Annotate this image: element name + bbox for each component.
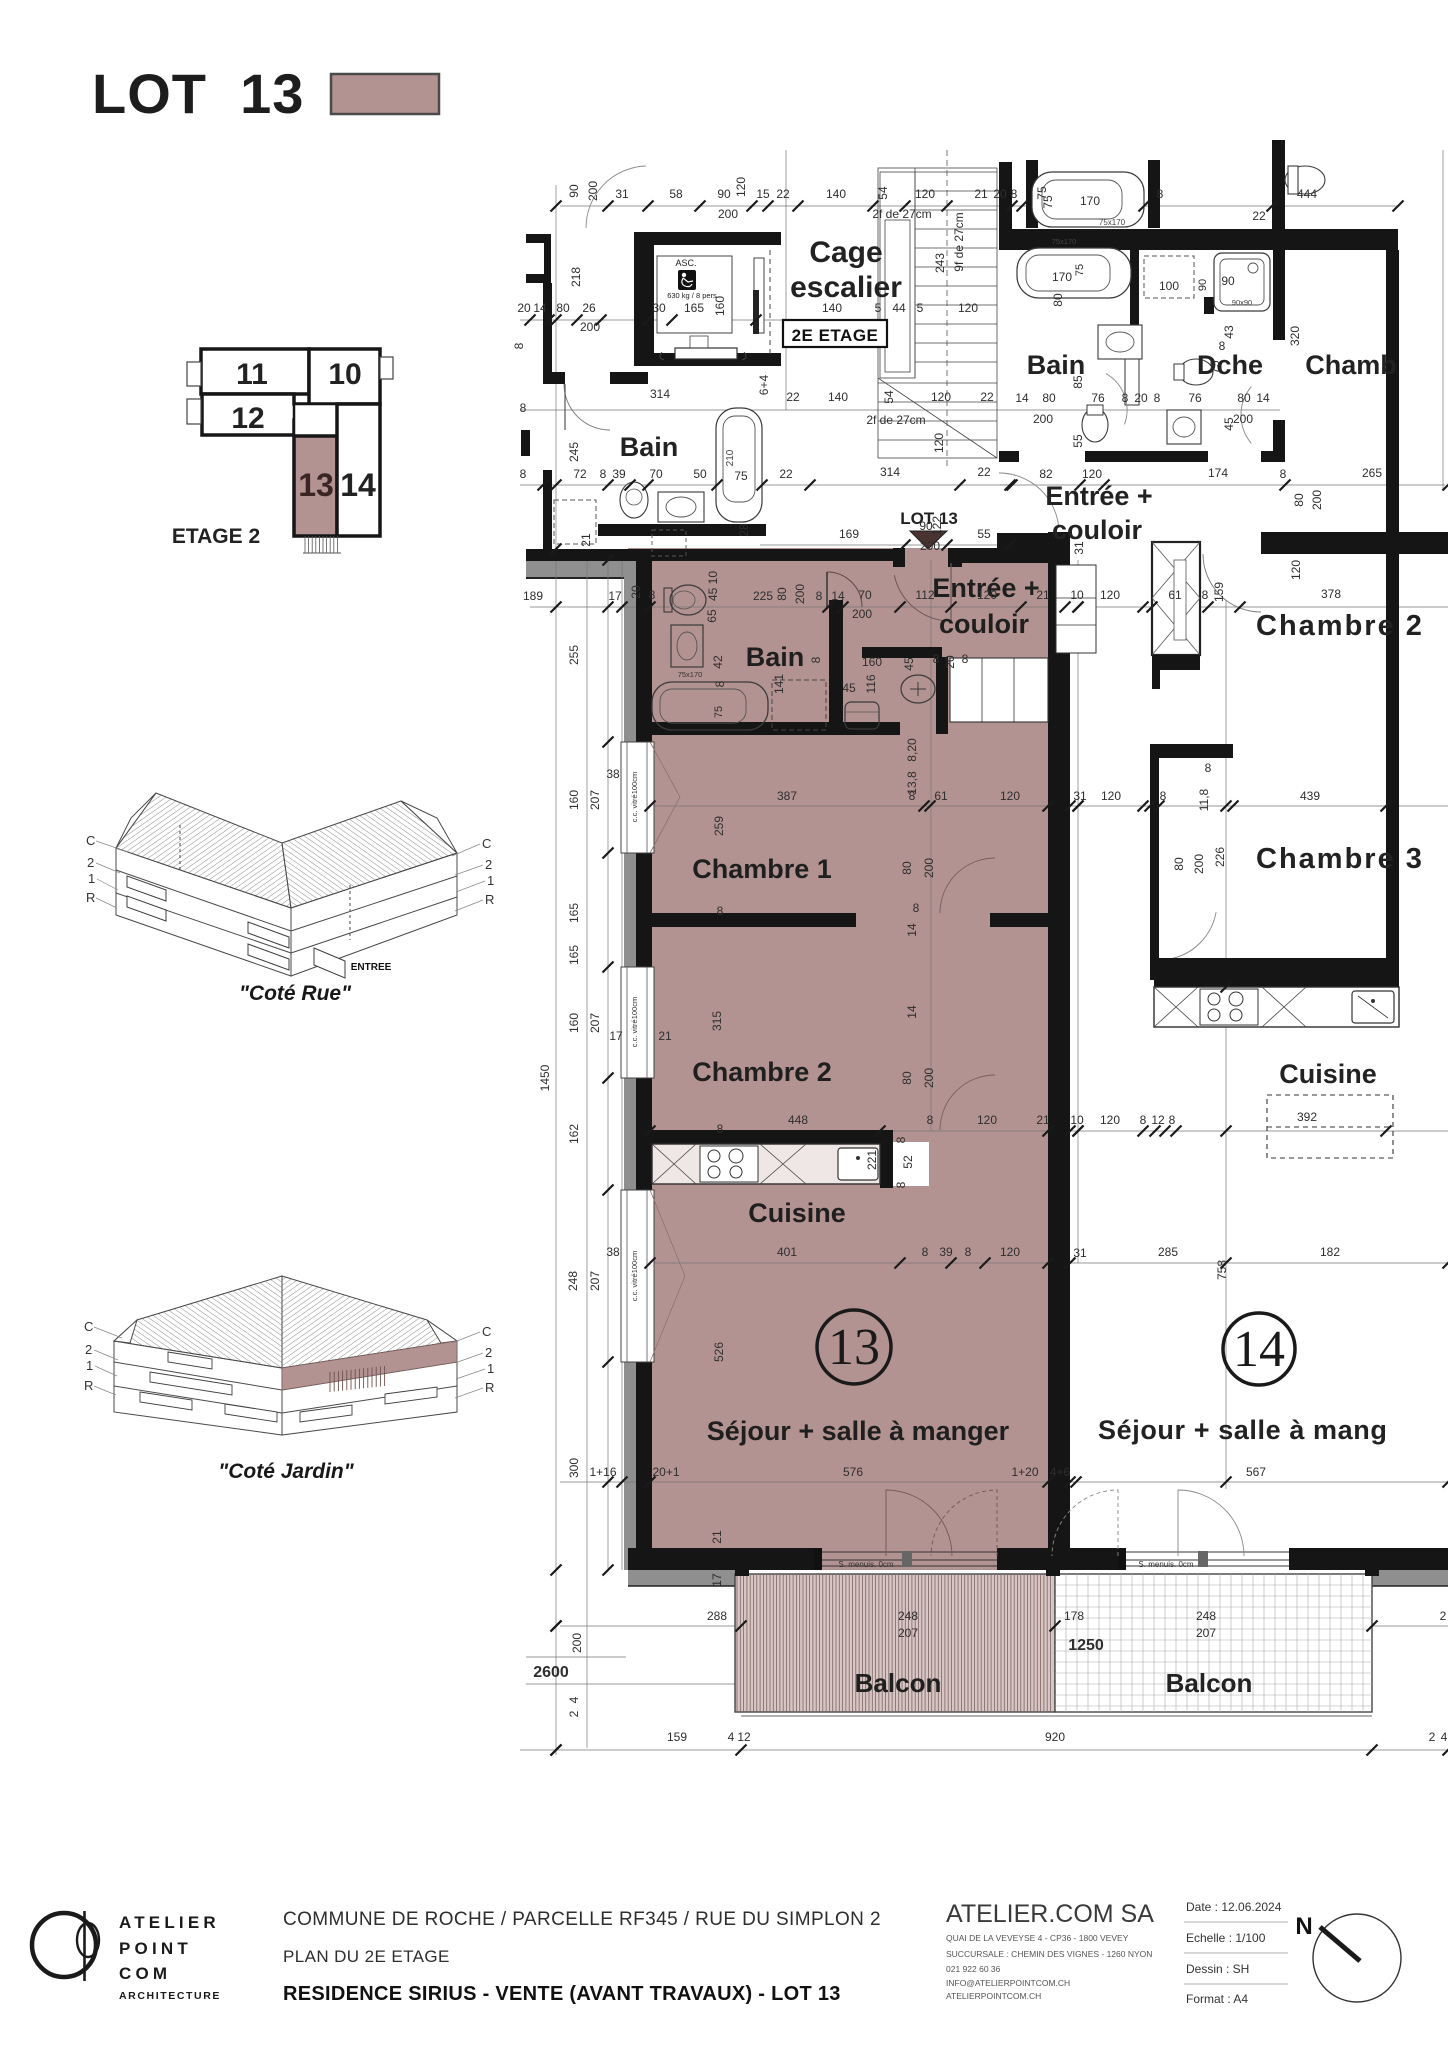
svg-text:207: 207 — [1196, 1626, 1216, 1640]
svg-text:70: 70 — [858, 588, 872, 602]
svg-text:300: 300 — [567, 1458, 581, 1478]
svg-text:31: 31 — [1072, 541, 1086, 555]
svg-text:ATELIER.COM SA: ATELIER.COM SA — [946, 1900, 1154, 1928]
svg-text:10: 10 — [328, 358, 361, 391]
svg-text:Cuisine: Cuisine — [748, 1198, 846, 1228]
svg-text:1+20: 1+20 — [1011, 1465, 1038, 1479]
svg-text:8: 8 — [922, 1245, 929, 1259]
svg-text:8: 8 — [520, 467, 527, 481]
svg-text:31: 31 — [615, 187, 629, 201]
svg-text:4: 4 — [567, 1696, 581, 1703]
svg-text:200: 200 — [1033, 412, 1053, 426]
svg-text:38: 38 — [606, 1245, 620, 1259]
svg-text:320: 320 — [1288, 326, 1302, 346]
svg-text:8: 8 — [962, 652, 969, 666]
svg-text:POINT: POINT — [119, 1939, 192, 1958]
svg-text:30: 30 — [652, 301, 666, 315]
svg-text:8: 8 — [965, 1245, 972, 1259]
svg-text:20: 20 — [629, 585, 643, 599]
svg-text:12: 12 — [1151, 1113, 1165, 1127]
svg-text:8: 8 — [1011, 187, 1018, 201]
svg-text:526: 526 — [712, 1342, 726, 1362]
svg-text:11,8: 11,8 — [1197, 788, 1211, 811]
svg-text:Cuisine: Cuisine — [1279, 1059, 1377, 1089]
svg-text:2f de 27cm: 2f de 27cm — [866, 413, 925, 427]
svg-text:14: 14 — [340, 467, 376, 503]
svg-text:80: 80 — [900, 1071, 914, 1085]
svg-text:COM: COM — [119, 1964, 171, 1983]
svg-text:120: 120 — [1101, 789, 1121, 803]
svg-text:8: 8 — [933, 652, 940, 666]
svg-text:55: 55 — [1071, 434, 1085, 448]
svg-text:Bain: Bain — [746, 642, 805, 672]
svg-text:14: 14 — [533, 301, 547, 315]
svg-text:Dche: Dche — [1197, 350, 1263, 380]
svg-text:221: 221 — [865, 1150, 879, 1170]
svg-text:ASC.: ASC. — [675, 258, 696, 268]
svg-text:75: 75 — [1074, 264, 1086, 276]
svg-text:8: 8 — [1122, 391, 1129, 405]
svg-text:82: 82 — [1039, 467, 1053, 481]
svg-text:c.c. vitré100cm: c.c. vitré100cm — [630, 772, 639, 822]
svg-text:72: 72 — [573, 467, 587, 481]
svg-text:120: 120 — [977, 588, 997, 602]
svg-text:8: 8 — [1202, 588, 1209, 602]
svg-text:8: 8 — [649, 588, 656, 602]
svg-text:160: 160 — [862, 655, 882, 669]
svg-text:ARCHITECTURE: ARCHITECTURE — [119, 1990, 221, 2002]
svg-text:1: 1 — [88, 871, 95, 886]
svg-text:8: 8 — [1154, 391, 1161, 405]
svg-text:120: 120 — [734, 177, 748, 197]
svg-text:RESIDENCE SIRIUS - VENTE (AVAN: RESIDENCE SIRIUS - VENTE (AVANT TRAVAUX)… — [283, 1983, 841, 2005]
svg-text:120: 120 — [1000, 1245, 1020, 1259]
svg-text:54: 54 — [876, 186, 890, 200]
svg-text:S. menuis. 0cm: S. menuis. 0cm — [1138, 1560, 1193, 1569]
svg-text:ENTREE: ENTREE — [351, 962, 392, 973]
svg-text:61: 61 — [934, 789, 948, 803]
svg-text:576: 576 — [843, 1465, 863, 1479]
svg-text:315: 315 — [710, 1011, 724, 1031]
svg-text:1250: 1250 — [1068, 1637, 1104, 1654]
svg-text:4: 4 — [1441, 1730, 1448, 1744]
svg-text:120: 120 — [1289, 560, 1303, 580]
svg-text:85: 85 — [1071, 375, 1085, 389]
svg-text:160: 160 — [567, 790, 581, 810]
svg-text:Format : A4: Format : A4 — [1186, 1992, 1248, 2006]
svg-text:90: 90 — [1221, 274, 1235, 288]
svg-text:8,20: 8,20 — [905, 738, 919, 762]
svg-text:12: 12 — [231, 402, 264, 435]
svg-text:38: 38 — [606, 767, 620, 781]
svg-text:14: 14 — [1015, 391, 1029, 405]
svg-text:76: 76 — [1091, 391, 1105, 405]
svg-text:2: 2 — [567, 1710, 581, 1717]
svg-text:200: 200 — [1192, 854, 1206, 874]
svg-text:140: 140 — [826, 187, 846, 201]
svg-text:75: 75 — [734, 469, 748, 483]
svg-text:61: 61 — [1168, 588, 1182, 602]
svg-text:8: 8 — [717, 1122, 724, 1136]
svg-text:20: 20 — [993, 187, 1007, 201]
svg-text:80: 80 — [1042, 391, 1056, 405]
svg-text:2: 2 — [485, 857, 492, 872]
svg-text:8: 8 — [512, 342, 526, 349]
svg-text:8: 8 — [927, 1113, 934, 1127]
svg-text:112: 112 — [915, 588, 934, 602]
svg-text:43: 43 — [1222, 325, 1236, 339]
svg-text:178: 178 — [1064, 1609, 1084, 1623]
svg-text:314: 314 — [650, 387, 670, 401]
svg-text:22: 22 — [779, 467, 793, 481]
svg-text:200: 200 — [1233, 412, 1253, 426]
svg-text:160: 160 — [713, 296, 727, 316]
svg-text:Balcon: Balcon — [1166, 1668, 1253, 1698]
svg-text:225: 225 — [753, 589, 773, 603]
svg-text:12: 12 — [737, 1730, 751, 1744]
svg-text:159: 159 — [1212, 582, 1226, 602]
svg-text:Chambre 1: Chambre 1 — [692, 854, 832, 884]
svg-text:200: 200 — [793, 584, 807, 604]
svg-text:160: 160 — [567, 1013, 581, 1033]
svg-text:90: 90 — [567, 184, 581, 198]
svg-text:22: 22 — [977, 465, 991, 479]
svg-text:couloir: couloir — [1052, 515, 1142, 545]
svg-text:122: 122 — [930, 516, 944, 536]
svg-text:50: 50 — [693, 467, 707, 481]
svg-text:17: 17 — [608, 589, 622, 603]
svg-text:70: 70 — [649, 467, 663, 481]
svg-text:13,8: 13,8 — [905, 771, 919, 795]
svg-text:200: 200 — [922, 858, 936, 878]
svg-text:90: 90 — [717, 187, 731, 201]
svg-text:021 922 60 36: 021 922 60 36 — [946, 1964, 1001, 1974]
svg-text:Séjour + salle à manger: Séjour + salle à manger — [707, 1416, 1010, 1446]
svg-text:248: 248 — [898, 1609, 918, 1623]
svg-text:448: 448 — [788, 1113, 808, 1127]
svg-text:120: 120 — [915, 187, 935, 201]
svg-text:58: 58 — [669, 187, 683, 201]
svg-text:21: 21 — [974, 187, 988, 201]
svg-text:401: 401 — [777, 1245, 797, 1259]
svg-text:Date : 12.06.2024: Date : 12.06.2024 — [1186, 1900, 1282, 1914]
svg-text:ETAGE 2: ETAGE 2 — [172, 525, 260, 548]
svg-text:4: 4 — [728, 1730, 735, 1744]
svg-text:8: 8 — [1205, 761, 1212, 775]
svg-text:14: 14 — [1233, 1321, 1285, 1378]
svg-text:80: 80 — [1051, 293, 1065, 307]
svg-text:76: 76 — [1188, 391, 1202, 405]
svg-text:escalier: escalier — [790, 271, 902, 304]
svg-text:20+1: 20+1 — [652, 1465, 679, 1479]
svg-text:120: 120 — [977, 1113, 997, 1127]
svg-text:5: 5 — [875, 301, 882, 315]
svg-text:165: 165 — [567, 903, 581, 923]
svg-text:920: 920 — [1045, 1730, 1065, 1744]
svg-text:Chamb: Chamb — [1305, 350, 1397, 380]
svg-text:8: 8 — [894, 1181, 908, 1188]
svg-text:159: 159 — [667, 1730, 687, 1744]
svg-text:439: 439 — [1300, 789, 1320, 803]
svg-text:22: 22 — [1252, 209, 1266, 223]
svg-text:75: 75 — [1208, 360, 1222, 374]
svg-text:17: 17 — [710, 1573, 724, 1587]
svg-text:ATELIER: ATELIER — [119, 1913, 220, 1932]
svg-text:9f de 27cm: 9f de 27cm — [952, 212, 966, 271]
svg-text:162: 162 — [567, 1124, 581, 1144]
svg-text:80: 80 — [1172, 857, 1186, 871]
svg-text:207: 207 — [588, 1271, 602, 1291]
svg-text:R: R — [485, 892, 494, 907]
svg-text:165: 165 — [684, 301, 704, 315]
svg-text:45: 45 — [842, 681, 856, 695]
svg-text:Dessin : SH: Dessin : SH — [1186, 1962, 1249, 1976]
svg-text:210: 210 — [725, 449, 736, 466]
svg-text:141: 141 — [772, 674, 786, 694]
svg-text:8: 8 — [1280, 467, 1287, 481]
svg-text:N: N — [1295, 1913, 1312, 1940]
svg-text:8: 8 — [809, 656, 823, 663]
svg-text:ATELIERPOINTCOM.CH: ATELIERPOINTCOM.CH — [946, 1991, 1041, 2001]
svg-text:174: 174 — [1208, 466, 1228, 480]
svg-text:5: 5 — [917, 301, 924, 315]
svg-text:8: 8 — [520, 401, 527, 415]
svg-text:8: 8 — [913, 901, 920, 915]
svg-text:54: 54 — [882, 390, 896, 404]
svg-text:378: 378 — [1321, 587, 1341, 601]
svg-text:R: R — [84, 1378, 93, 1393]
svg-text:55: 55 — [977, 527, 991, 541]
svg-text:80: 80 — [556, 301, 570, 315]
svg-text:R: R — [86, 890, 95, 905]
svg-text:116: 116 — [864, 674, 878, 693]
svg-text:26: 26 — [582, 301, 596, 315]
svg-text:QUAI DE LA VEVEYSE 4 - CP36 -: QUAI DE LA VEVEYSE 4 - CP36 - 1800 VEVEY — [946, 1933, 1129, 1943]
svg-text:14: 14 — [905, 923, 919, 937]
svg-text:120: 120 — [1100, 588, 1120, 602]
svg-text:22: 22 — [776, 187, 790, 201]
svg-text:10: 10 — [1070, 588, 1084, 602]
svg-text:75x170: 75x170 — [678, 670, 703, 679]
svg-text:8: 8 — [717, 904, 724, 918]
svg-text:COMMUNE DE ROCHE / PARCELLE RF: COMMUNE DE ROCHE / PARCELLE RF345 / RUE … — [283, 1909, 881, 1930]
svg-text:387: 387 — [777, 789, 797, 803]
svg-text:17: 17 — [609, 1029, 623, 1043]
svg-text:13: 13 — [828, 1319, 880, 1376]
svg-text:20: 20 — [943, 655, 957, 669]
svg-text:75: 75 — [713, 706, 725, 718]
svg-text:39: 39 — [612, 467, 626, 481]
svg-text:S. menuis. 0cm: S. menuis. 0cm — [838, 1560, 893, 1569]
svg-text:Entrée +: Entrée + — [1045, 481, 1152, 511]
svg-text:C: C — [482, 1324, 491, 1339]
svg-text:8: 8 — [1219, 339, 1226, 353]
svg-text:11: 11 — [236, 358, 268, 391]
svg-text:226: 226 — [1213, 847, 1227, 867]
svg-text:120: 120 — [931, 390, 951, 404]
svg-text:2: 2 — [1429, 1730, 1436, 1744]
svg-text:8: 8 — [713, 680, 727, 687]
svg-text:"Coté Jardin": "Coté Jardin" — [218, 1460, 354, 1483]
svg-text:248: 248 — [1196, 1609, 1216, 1623]
svg-text:8: 8 — [816, 589, 823, 603]
svg-text:SUCCURSALE : CHEMIN DES VIGNES: SUCCURSALE : CHEMIN DES VIGNES - 1260 NY… — [946, 1949, 1152, 1959]
svg-text:21: 21 — [710, 1530, 724, 1544]
svg-text:1: 1 — [86, 1358, 93, 1373]
svg-text:Balcon: Balcon — [855, 1668, 942, 1698]
svg-text:13: 13 — [298, 467, 334, 503]
svg-text:Chambre 2: Chambre 2 — [692, 1057, 832, 1087]
svg-text:2600: 2600 — [533, 1664, 569, 1681]
svg-text:45 10: 45 10 — [706, 571, 720, 601]
svg-text:285: 285 — [1158, 1245, 1178, 1259]
svg-text:c.c. vitré100cm: c.c. vitré100cm — [630, 1251, 639, 1301]
svg-text:8: 8 — [894, 1136, 908, 1143]
svg-text:44: 44 — [892, 301, 906, 315]
svg-text:Chambre 2: Chambre 2 — [1256, 610, 1424, 642]
svg-text:140: 140 — [828, 390, 848, 404]
svg-text:170: 170 — [1080, 194, 1100, 208]
svg-text:207: 207 — [588, 1013, 602, 1033]
svg-text:140: 140 — [822, 301, 842, 315]
svg-text:20: 20 — [517, 301, 531, 315]
svg-text:45: 45 — [1222, 417, 1236, 431]
svg-text:14: 14 — [831, 589, 845, 603]
svg-text:259: 259 — [712, 816, 726, 836]
svg-text:C: C — [482, 836, 491, 851]
svg-text:80: 80 — [1237, 391, 1251, 405]
svg-text:6+4: 6+4 — [757, 374, 771, 395]
svg-text:170: 170 — [1052, 270, 1072, 284]
svg-text:444: 444 — [1297, 187, 1317, 201]
svg-text:243: 243 — [933, 253, 947, 273]
svg-text:15: 15 — [756, 187, 770, 201]
svg-text:75: 75 — [1035, 186, 1049, 200]
svg-text:120: 120 — [1000, 789, 1020, 803]
svg-text:255: 255 — [567, 645, 581, 665]
svg-text:10: 10 — [1070, 1113, 1084, 1127]
svg-text:INFO@ATELIERPOINTCOM.CH: INFO@ATELIERPOINTCOM.CH — [946, 1978, 1070, 1988]
svg-text:120: 120 — [958, 301, 978, 315]
svg-text:Echelle : 1/100: Echelle : 1/100 — [1186, 1931, 1266, 1945]
svg-text:21: 21 — [579, 533, 593, 547]
svg-text:28: 28 — [737, 523, 751, 537]
svg-text:1: 1 — [487, 1361, 494, 1376]
svg-text:c.c. vitré100cm: c.c. vitré100cm — [630, 997, 639, 1047]
svg-text:200: 200 — [922, 1068, 936, 1088]
svg-text:207: 207 — [588, 790, 602, 810]
svg-text:8: 8 — [1140, 1113, 1147, 1127]
svg-text:8: 8 — [600, 467, 607, 481]
svg-text:75x170: 75x170 — [1099, 218, 1126, 227]
svg-text:45: 45 — [902, 657, 916, 671]
svg-text:80: 80 — [900, 861, 914, 875]
svg-text:65: 65 — [705, 609, 719, 623]
svg-text:2: 2 — [85, 1342, 92, 1357]
svg-text:630 kg / 8 pers: 630 kg / 8 pers — [667, 291, 717, 300]
svg-text:207: 207 — [898, 1626, 918, 1640]
svg-text:Cage: Cage — [809, 236, 882, 269]
svg-text:22: 22 — [980, 390, 994, 404]
svg-text:169: 169 — [839, 527, 859, 541]
svg-text:14: 14 — [905, 1005, 919, 1019]
svg-text:2: 2 — [485, 1345, 492, 1360]
svg-text:Chambre 3: Chambre 3 — [1256, 843, 1424, 875]
svg-text:80: 80 — [775, 587, 789, 601]
svg-text:392: 392 — [1297, 1110, 1317, 1124]
svg-text:245: 245 — [567, 442, 581, 462]
svg-text:567: 567 — [1246, 1465, 1266, 1479]
svg-text:314: 314 — [880, 465, 900, 479]
svg-text:200: 200 — [718, 207, 738, 221]
svg-text:PLAN DU 2E ETAGE: PLAN DU 2E ETAGE — [283, 1947, 450, 1966]
svg-text:1450: 1450 — [538, 1064, 552, 1091]
svg-text:120: 120 — [932, 433, 946, 453]
svg-text:165: 165 — [567, 945, 581, 965]
svg-text:21: 21 — [658, 1029, 672, 1043]
svg-text:120: 120 — [1082, 467, 1102, 481]
svg-text:100: 100 — [1159, 279, 1179, 293]
svg-text:2: 2 — [87, 855, 94, 870]
svg-text:200: 200 — [580, 320, 600, 334]
svg-text:22: 22 — [786, 390, 800, 404]
svg-text:218: 218 — [569, 267, 583, 287]
svg-text:200: 200 — [920, 539, 940, 553]
svg-text:80: 80 — [1292, 493, 1306, 507]
svg-text:8: 8 — [1157, 187, 1164, 201]
svg-text:2E ETAGE: 2E ETAGE — [792, 326, 879, 345]
svg-text:75x170: 75x170 — [1052, 237, 1077, 246]
svg-text:52: 52 — [901, 1155, 915, 1169]
svg-text:R: R — [485, 1380, 494, 1395]
svg-text:Bain: Bain — [620, 432, 679, 462]
svg-text:182: 182 — [1320, 1245, 1340, 1259]
svg-text:21: 21 — [1036, 588, 1050, 602]
svg-text:200: 200 — [852, 607, 872, 621]
svg-text:39: 39 — [939, 1245, 953, 1259]
svg-text:LOT 13: LOT 13 — [92, 62, 304, 125]
svg-text:1: 1 — [487, 873, 494, 888]
svg-text:14: 14 — [1256, 391, 1270, 405]
svg-text:200: 200 — [1310, 490, 1324, 510]
svg-text:90: 90 — [1197, 279, 1209, 291]
svg-text:189: 189 — [523, 589, 543, 603]
svg-text:120: 120 — [1100, 1113, 1120, 1127]
svg-text:Séjour + salle à mang: Séjour + salle à mang — [1098, 1415, 1387, 1445]
svg-text:C: C — [86, 833, 95, 848]
svg-text:90x90: 90x90 — [1232, 298, 1252, 307]
svg-text:2: 2 — [1440, 1609, 1447, 1623]
svg-text:288: 288 — [707, 1609, 727, 1623]
svg-text:265: 265 — [1362, 466, 1382, 480]
svg-text:couloir: couloir — [939, 609, 1029, 639]
svg-text:21: 21 — [1036, 1113, 1050, 1127]
svg-text:248: 248 — [566, 1271, 580, 1291]
svg-text:42: 42 — [711, 655, 725, 669]
svg-text:20: 20 — [1134, 391, 1148, 405]
svg-text:200: 200 — [570, 1633, 584, 1653]
svg-text:"Coté Rue": "Coté Rue" — [239, 982, 352, 1005]
svg-text:C: C — [84, 1319, 93, 1334]
svg-text:200: 200 — [586, 181, 600, 201]
